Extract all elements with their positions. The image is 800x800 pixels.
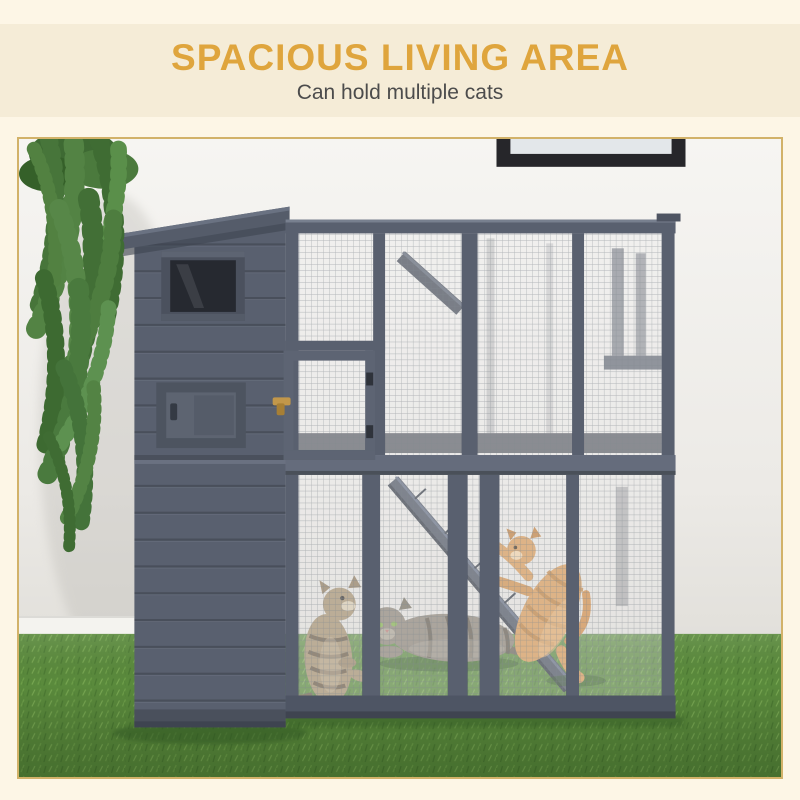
corner-cap xyxy=(657,214,681,222)
product-photo-illustration xyxy=(19,139,781,777)
picture-frame xyxy=(496,139,685,167)
wood-cabin xyxy=(116,207,289,728)
product-photo xyxy=(17,137,783,779)
hatch-handle xyxy=(170,403,177,420)
cabin-window xyxy=(161,251,245,321)
title-band: SPACIOUS LIVING AREA Can hold multiple c… xyxy=(0,24,800,117)
page-subtitle: Can hold multiple cats xyxy=(297,82,504,103)
marketing-page: SPACIOUS LIVING AREA Can hold multiple c… xyxy=(0,0,800,800)
door-hinge xyxy=(366,373,373,386)
page-title: SPACIOUS LIVING AREA xyxy=(171,39,629,76)
door-hinge xyxy=(366,425,373,438)
cabin-hatch-door xyxy=(156,382,246,448)
